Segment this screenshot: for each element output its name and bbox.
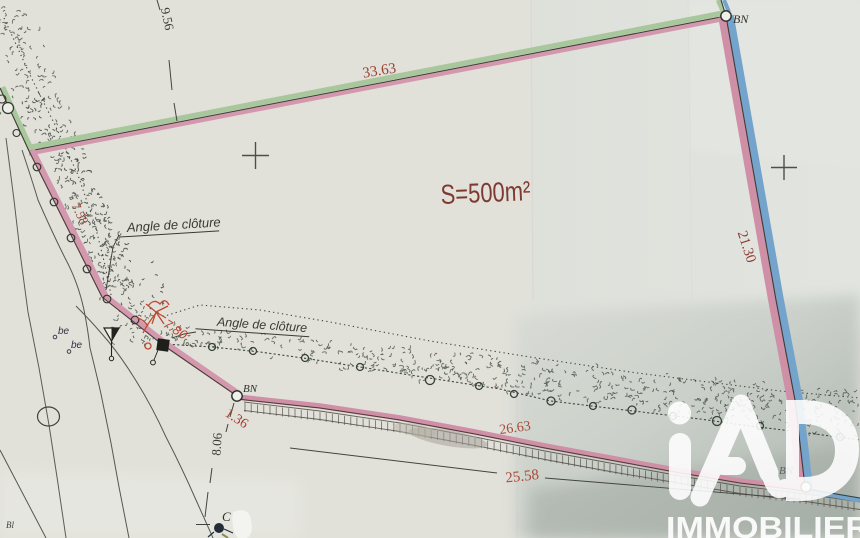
svg-text:BN: BN — [243, 383, 258, 395]
svg-text:Bl: Bl — [6, 520, 14, 530]
svg-text:C: C — [222, 509, 231, 524]
svg-text:S=500m²: S=500m² — [440, 176, 531, 211]
svg-text:8.06: 8.06 — [208, 432, 225, 456]
svg-text:be: be — [58, 326, 70, 337]
svg-text:IMMOBILIER: IMMOBILIER — [666, 510, 860, 538]
svg-text:be: be — [71, 340, 83, 351]
svg-text:BN: BN — [733, 12, 749, 26]
